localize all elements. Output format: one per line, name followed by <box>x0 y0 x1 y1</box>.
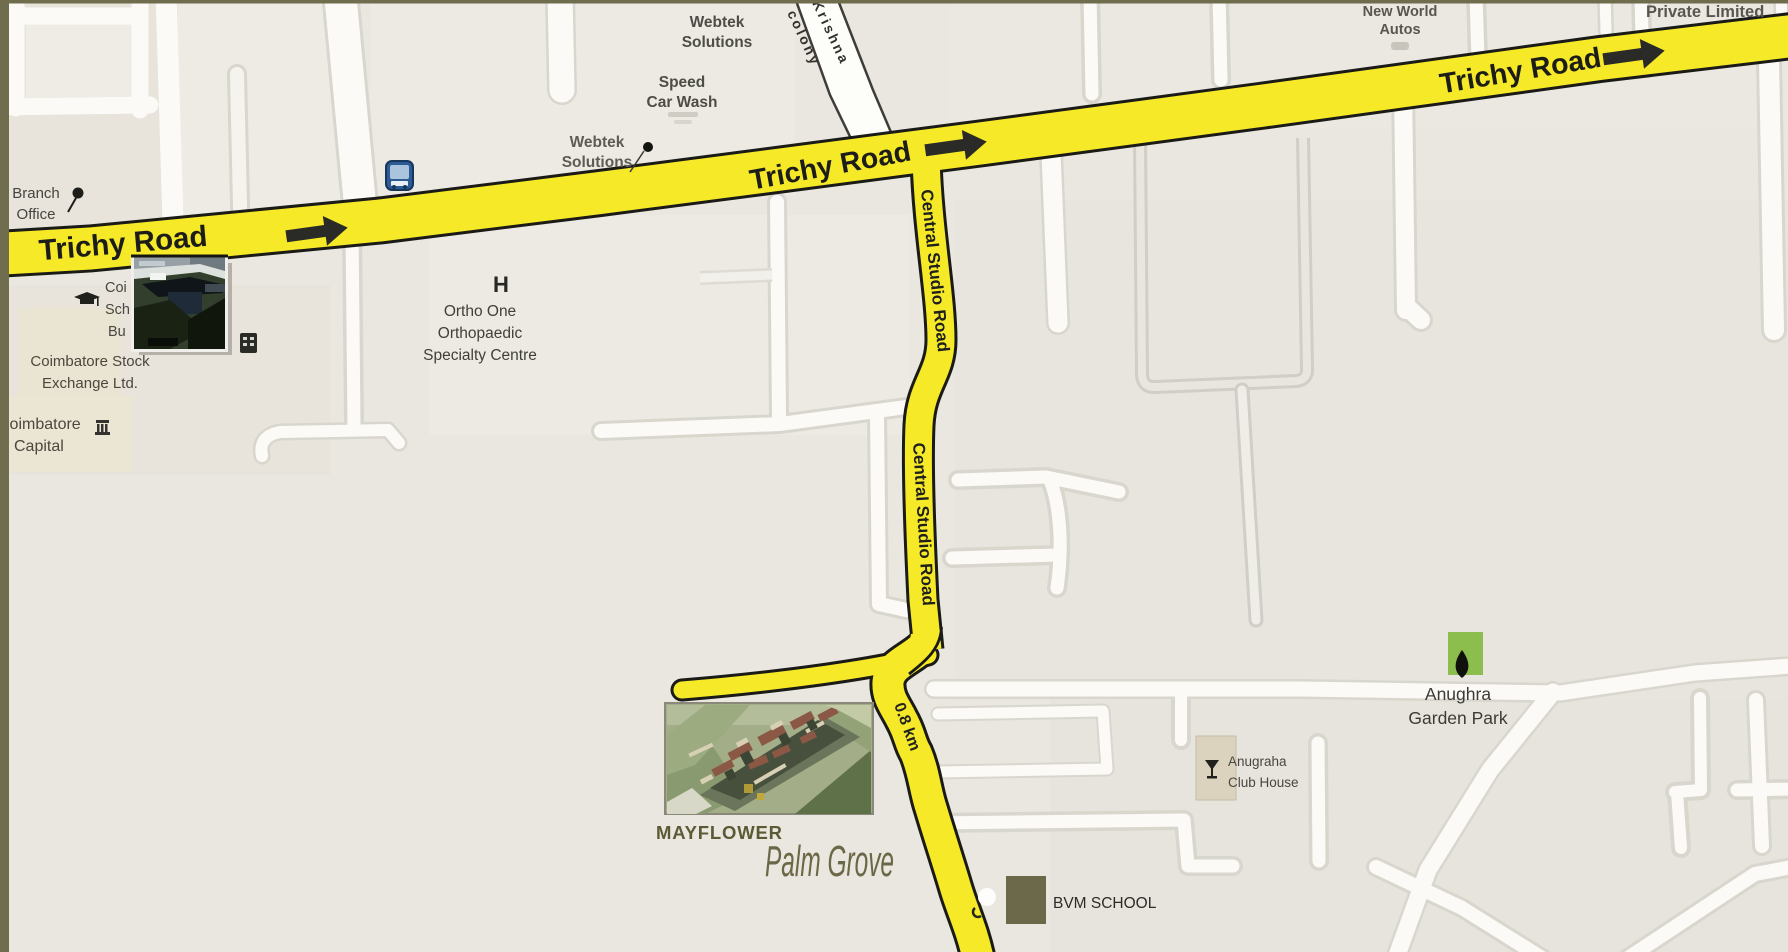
svg-text:Palm Grove: Palm Grove <box>765 837 894 886</box>
svg-text:Specialty Centre: Specialty Centre <box>423 347 537 364</box>
svg-text:New World: New World <box>1363 4 1438 20</box>
svg-text:Exchange Ltd.: Exchange Ltd. <box>42 375 138 392</box>
svg-text:Orthopaedic: Orthopaedic <box>438 325 523 342</box>
svg-text:Webtek: Webtek <box>570 134 625 151</box>
svg-text:Solutions: Solutions <box>682 34 753 51</box>
svg-text:Sch: Sch <box>105 302 130 318</box>
svg-text:Capital: Capital <box>14 438 64 455</box>
svg-text:BVM SCHOOL: BVM SCHOOL <box>1053 895 1157 912</box>
svg-text:Anugraha: Anugraha <box>1228 754 1287 769</box>
svg-text:Coi: Coi <box>105 280 127 296</box>
svg-text:Solutions: Solutions <box>562 154 633 171</box>
svg-text:Car Wash: Car Wash <box>647 94 718 111</box>
svg-text:Speed: Speed <box>659 74 706 91</box>
svg-text:MAYFLOWER: MAYFLOWER <box>656 822 783 843</box>
svg-text:Club House: Club House <box>1228 775 1299 790</box>
svg-text:Bu: Bu <box>108 324 126 340</box>
svg-text:Private Limited: Private Limited <box>1646 3 1764 21</box>
svg-text:Anughra: Anughra <box>1425 684 1491 704</box>
svg-text:Branch: Branch <box>12 185 60 202</box>
svg-text:Ortho One: Ortho One <box>444 303 516 320</box>
svg-text:Coimbatore: Coimbatore <box>0 416 81 433</box>
svg-text:H: H <box>493 272 509 297</box>
svg-text:Garden Park: Garden Park <box>1408 708 1507 728</box>
svg-text:Office: Office <box>17 206 56 223</box>
svg-text:Autos: Autos <box>1379 22 1420 38</box>
svg-text:Coimbatore Stock: Coimbatore Stock <box>30 353 150 370</box>
svg-text:Webtek: Webtek <box>690 14 745 31</box>
